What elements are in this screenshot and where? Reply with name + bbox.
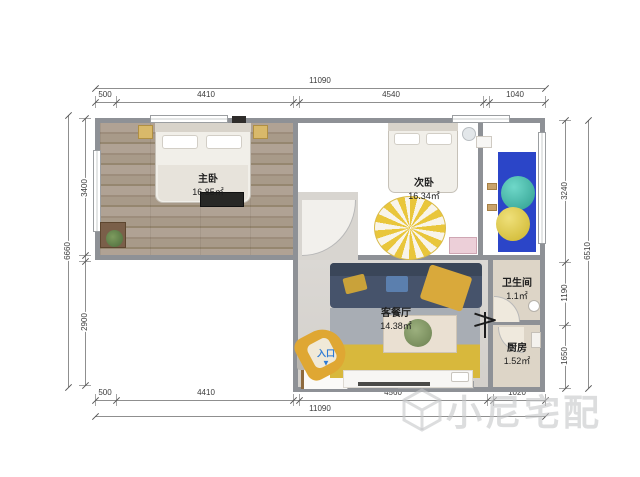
room-area: 16.34㎡ xyxy=(408,191,440,202)
dim-top-seg-1: 500 xyxy=(97,91,112,99)
watermark: 小尼宅配 xyxy=(402,384,602,436)
dim-bottom-seg-1: 500 xyxy=(97,389,112,397)
teal-exercise-ball xyxy=(501,176,535,210)
dim-top-seg-3: 4540 xyxy=(381,91,401,99)
dim-line-top-overall xyxy=(95,88,545,89)
dim-line-top-segments xyxy=(95,102,545,103)
entrance-label: 入口 ▼ xyxy=(317,348,335,367)
sofa-pillow-blue xyxy=(386,276,408,292)
second-pillow-left xyxy=(394,133,420,145)
window-balcony-right xyxy=(538,132,546,244)
wall-vent-block xyxy=(232,116,246,123)
dim-right-seg-2: 1190 xyxy=(561,283,569,302)
room-name: 卫生间 xyxy=(502,278,532,291)
dim-top-seg-4: 1040 xyxy=(505,91,525,99)
second-round-rug xyxy=(374,196,446,260)
window-master-top xyxy=(150,115,228,123)
entrance-arrow-icon: ▼ xyxy=(317,360,335,368)
room-name: 客餐厅 xyxy=(380,308,412,321)
label-kitchen: 厨房 1.52㎡ xyxy=(504,343,531,367)
master-nightstand-right xyxy=(253,125,268,139)
master-pillow-left xyxy=(162,135,198,149)
yoga-block-1 xyxy=(487,183,497,190)
watermark-cube-icon xyxy=(402,388,442,432)
second-pillow-right xyxy=(426,133,452,145)
room-area: 14.38㎡ xyxy=(380,321,412,332)
master-nightstand-left xyxy=(138,125,153,139)
master-plant xyxy=(106,230,123,247)
yoga-block-2 xyxy=(487,204,497,211)
label-living-dining: 客餐厅 14.38㎡ xyxy=(380,308,412,332)
room-area: 1.52㎡ xyxy=(504,356,531,367)
room-area: 16.85㎡ xyxy=(192,187,224,198)
watermark-text: 小尼宅配 xyxy=(446,384,602,436)
dim-top-seg-2: 4410 xyxy=(196,91,216,99)
dim-left-seg-1: 3400 xyxy=(81,178,89,198)
dim-top-overall: 11090 xyxy=(308,77,332,85)
floor-plan-canvas: 11090 500 4410 4540 1040 500 4410 4560 1… xyxy=(0,0,640,477)
dim-bottom-seg-2: 4410 xyxy=(196,389,216,397)
room-area: 1.1㎡ xyxy=(502,291,532,302)
dim-bottom-overall: 11090 xyxy=(308,405,332,413)
yellow-exercise-ball xyxy=(496,207,530,241)
second-dresser xyxy=(449,237,477,254)
window-balcony-top xyxy=(452,115,510,123)
second-bed-headboard xyxy=(388,123,458,131)
kitchen-counter xyxy=(531,332,541,348)
label-bathroom: 卫生间 1.1㎡ xyxy=(502,278,532,302)
second-vanity xyxy=(476,136,492,148)
master-pillow-right xyxy=(206,135,242,149)
window-master-left xyxy=(93,150,101,232)
master-bed-headboard xyxy=(155,123,251,132)
room-name: 次卧 xyxy=(408,178,440,191)
dim-line-left-segments xyxy=(85,118,86,385)
label-master-bedroom: 主卧 16.85㎡ xyxy=(192,174,224,198)
dim-left-seg-2: 2900 xyxy=(81,312,89,332)
dim-right-seg-3: 1650 xyxy=(561,346,569,366)
console-speaker xyxy=(451,372,469,382)
tick xyxy=(65,384,72,391)
dim-right-overall: 6510 xyxy=(584,241,592,261)
dim-right-seg-1: 3240 xyxy=(561,181,569,201)
label-second-bedroom: 次卧 16.34㎡ xyxy=(408,178,440,202)
room-name: 主卧 xyxy=(192,174,224,187)
dim-left-overall: 6660 xyxy=(64,241,72,261)
tick xyxy=(542,85,549,92)
room-name: 厨房 xyxy=(504,343,531,356)
second-fan xyxy=(462,127,476,141)
